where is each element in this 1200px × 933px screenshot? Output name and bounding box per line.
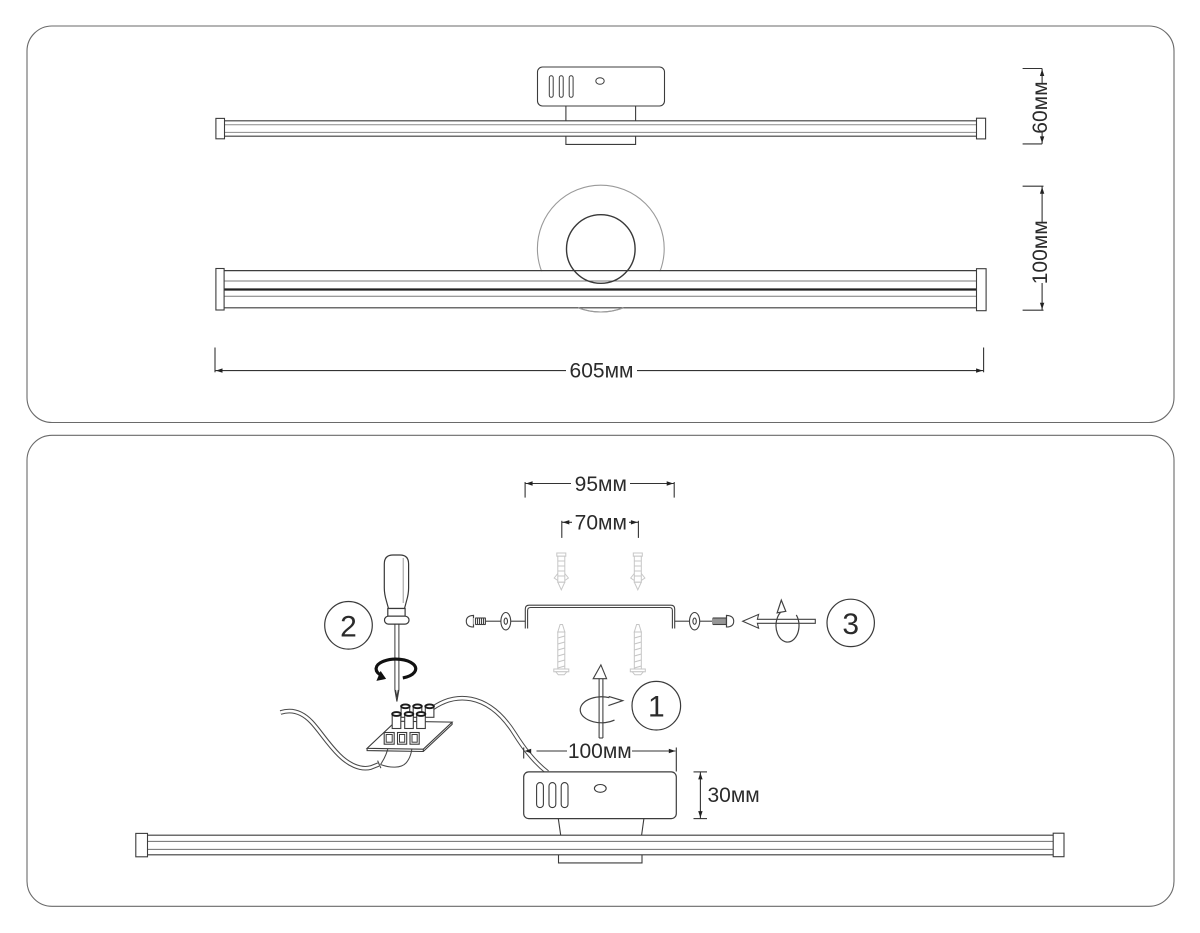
- svg-text:1: 1: [648, 691, 665, 724]
- svg-text:100мм: 100мм: [568, 740, 632, 763]
- svg-text:30мм: 30мм: [708, 784, 760, 807]
- svg-text:605мм: 605мм: [570, 360, 634, 383]
- svg-text:100мм: 100мм: [1029, 220, 1052, 284]
- svg-text:70мм: 70мм: [575, 512, 627, 535]
- svg-text:60мм: 60мм: [1029, 81, 1052, 133]
- svg-text:95мм: 95мм: [575, 473, 627, 496]
- svg-text:2: 2: [340, 610, 357, 643]
- svg-text:3: 3: [842, 608, 859, 641]
